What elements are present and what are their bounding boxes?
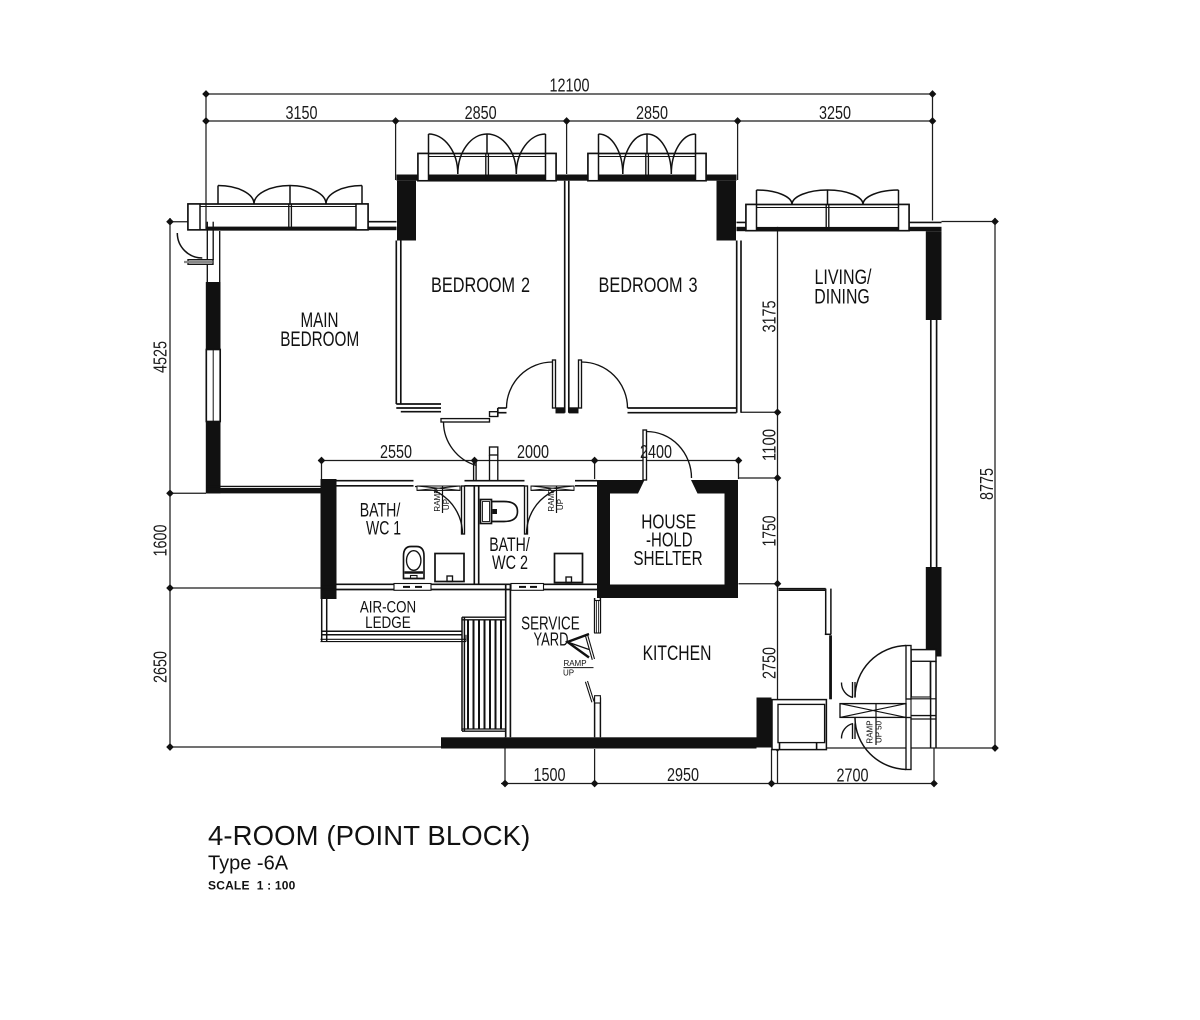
svg-text:DINING: DINING xyxy=(814,285,870,308)
svg-text:KITCHEN: KITCHEN xyxy=(643,642,712,665)
svg-text:2950: 2950 xyxy=(667,764,699,785)
svg-text:RAMP: RAMP xyxy=(866,720,875,743)
svg-text:Type -6A: Type -6A xyxy=(208,853,289,875)
svg-text:2550: 2550 xyxy=(380,441,412,462)
svg-text:BEDROOM 3: BEDROOM 3 xyxy=(599,274,698,297)
svg-text:2700: 2700 xyxy=(837,765,869,786)
svg-text:2850: 2850 xyxy=(636,102,668,123)
svg-text:BEDROOM: BEDROOM xyxy=(280,328,359,351)
svg-text:4-ROOM (POINT BLOCK): 4-ROOM (POINT BLOCK) xyxy=(208,820,530,851)
svg-text:2650: 2650 xyxy=(150,651,171,683)
svg-text:RAMP: RAMP xyxy=(547,488,556,511)
svg-text:WC 1: WC 1 xyxy=(366,518,401,539)
svg-text:WC 2: WC 2 xyxy=(492,553,528,574)
svg-text:BEDROOM 2: BEDROOM 2 xyxy=(431,274,530,297)
svg-text:2850: 2850 xyxy=(465,102,497,123)
svg-text:RAMP: RAMP xyxy=(563,659,586,668)
svg-text:4525: 4525 xyxy=(150,341,171,373)
svg-text:2750: 2750 xyxy=(759,647,780,679)
svg-text:8775: 8775 xyxy=(976,468,997,500)
svg-text:1500: 1500 xyxy=(534,764,566,785)
svg-text:UP: UP xyxy=(442,499,451,510)
svg-text:3150: 3150 xyxy=(286,102,318,123)
svg-text:UP: UP xyxy=(556,499,565,510)
svg-text:SHELTER: SHELTER xyxy=(633,547,702,570)
svg-text:SCALE 1 : 100: SCALE 1 : 100 xyxy=(208,879,296,893)
svg-text:1100: 1100 xyxy=(759,429,780,461)
svg-text:3250: 3250 xyxy=(819,102,851,123)
svg-text:12100: 12100 xyxy=(550,75,590,96)
svg-text:UP 50: UP 50 xyxy=(875,720,884,743)
svg-text:YARD: YARD xyxy=(534,629,569,649)
svg-text:1600: 1600 xyxy=(150,525,171,557)
svg-text:2400: 2400 xyxy=(640,441,672,462)
svg-text:LEDGE: LEDGE xyxy=(365,613,411,632)
svg-text:UP: UP xyxy=(563,669,574,678)
svg-text:3175: 3175 xyxy=(759,301,780,333)
svg-text:RAMP: RAMP xyxy=(433,488,442,511)
svg-text:1750: 1750 xyxy=(759,516,780,547)
svg-text:2000: 2000 xyxy=(517,441,549,462)
